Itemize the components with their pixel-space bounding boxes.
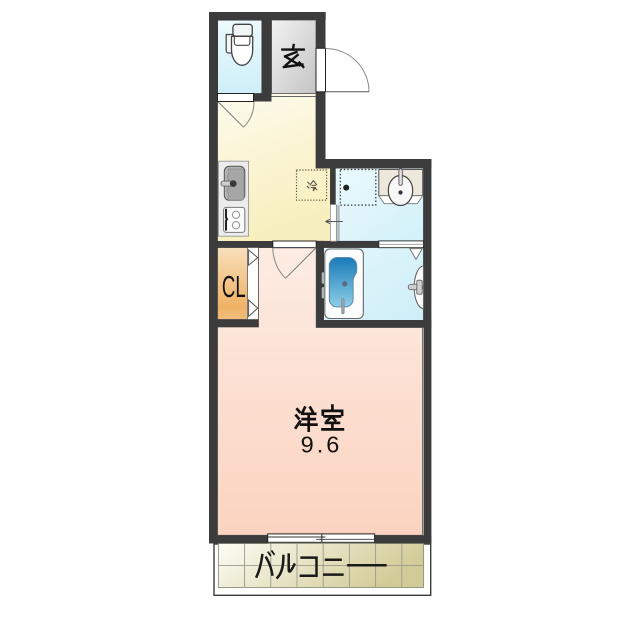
svg-text:CL: CL [222,270,246,304]
svg-text:9.6: 9.6 [301,432,343,458]
